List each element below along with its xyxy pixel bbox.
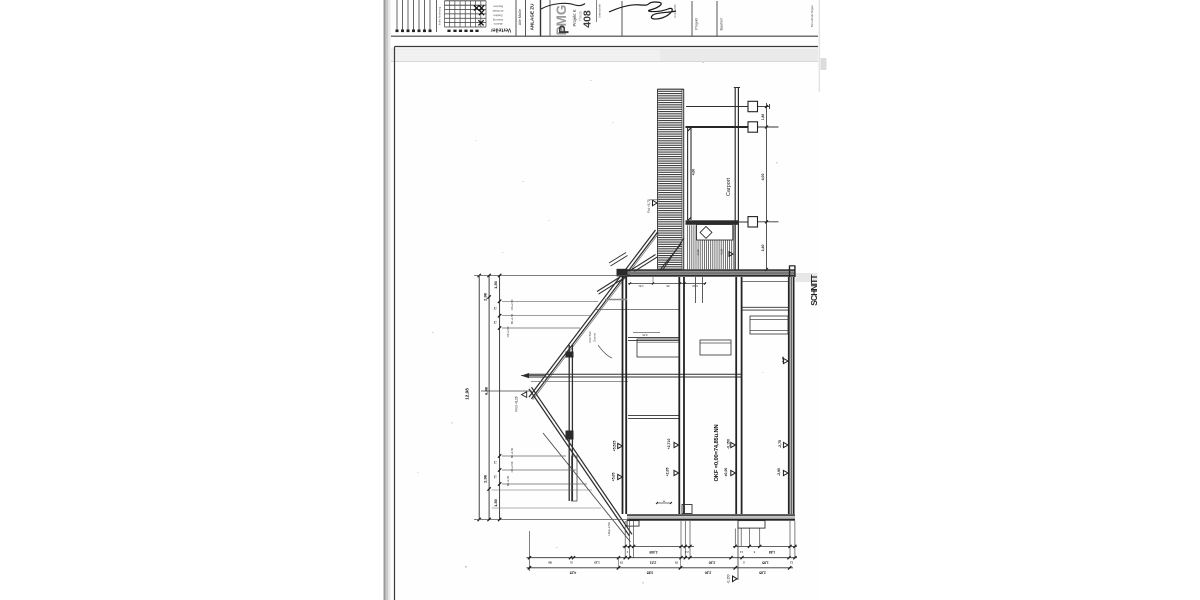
svg-text:Verteiler: Verteiler [491,27,511,33]
svg-text:+0,10: +0,10 [696,249,700,257]
svg-text:ANLAGE ZU: ANLAGE ZU [530,3,535,30]
svg-text:Carport: Carport [726,178,732,196]
svg-text:1,88: 1,88 [769,550,775,554]
svg-text:+2,710: +2,710 [667,439,671,450]
svg-text:Dachst.: Dachst. [593,332,597,342]
svg-text:1,50: 1,50 [493,498,498,507]
svg-text:75: 75 [620,560,624,564]
svg-text:Bauherr: Bauherr [720,17,724,31]
svg-text:1,25: 1,25 [594,560,600,564]
svg-text:BF+1,50: BF+1,50 [510,447,514,458]
svg-text:SCHNITT: SCHNITT [810,275,819,306]
svg-text:+5,525: +5,525 [613,441,617,452]
svg-text:OK+2,50: OK+2,50 [510,461,514,472]
svg-text:75: 75 [493,321,497,325]
svg-text:75: 75 [493,475,497,479]
svg-text:2,40: 2,40 [761,245,765,252]
svg-text:2,30: 2,30 [705,571,712,575]
svg-text:Projekt K: Projekt K [572,9,577,26]
svg-text:2,01: 2,01 [650,560,657,564]
svg-text:-2,60: -2,60 [777,468,781,476]
svg-text:Alle Maße: Alle Maße [518,9,522,25]
svg-text:0,10: 0,10 [692,284,698,288]
svg-text:Unterschrift: Unterschrift [598,4,602,18]
svg-text:Bevollmächtigter: Bevollmächtigter [810,5,814,27]
svg-text:2,85: 2,85 [759,571,766,575]
svg-text:OK+2,50: OK+2,50 [506,326,510,337]
svg-text:85: 85 [548,560,552,564]
svg-text:First +8,26: First +8,26 [515,396,519,411]
svg-text:+5,05: +5,05 [612,473,616,482]
svg-text:Unterschrift: Unterschrift [673,4,677,18]
svg-text:2,98: 2,98 [482,474,487,483]
svg-text:2,98: 2,98 [482,292,487,301]
svg-text:408: 408 [582,10,594,28]
svg-text:6,48: 6,48 [483,386,488,395]
svg-text:-0,150: -0,150 [727,439,731,449]
svg-text:12,98: 12,98 [465,388,470,400]
svg-text:+2,05: +2,05 [666,468,670,477]
svg-text:12: 12 [740,550,744,554]
svg-text:85: 85 [666,284,670,288]
svg-text:Statiker: Statiker [493,13,503,17]
svg-text:Elektro: Elektro [493,22,502,26]
svg-text:1,88: 1,88 [761,114,765,120]
svg-text:Fst +3,70: Fst +3,70 [647,199,651,213]
svg-text:1,85: 1,85 [762,560,769,564]
svg-text:-0,150: -0,150 [727,574,731,583]
svg-text:Architekt: Architekt [492,9,503,13]
svg-text:1,50: 1,50 [493,280,498,289]
svg-text:BF+1,50: BF+1,50 [506,475,510,486]
svg-text:2,385: 2,385 [649,550,657,554]
svg-text:Bauherr: Bauherr [493,5,503,9]
svg-text:8,85: 8,85 [642,333,648,337]
svg-text:OKF =0,00=74,85ü.NN: OKF =0,00=74,85ü.NN [714,424,720,481]
svg-text:75: 75 [675,560,679,564]
svg-text:1,51: 1,51 [638,284,644,288]
svg-text:Heizung: Heizung [492,18,503,22]
svg-text:-0,10: -0,10 [720,248,724,255]
svg-text:2 2: 2 2 [685,550,689,554]
svg-text:4,25: 4,25 [570,571,577,575]
svg-text:4,00: 4,00 [761,174,765,181]
svg-text:HG(+3,59: HG(+3,59 [607,522,611,535]
svg-text:OK+2,50: OK+2,50 [510,299,514,310]
svg-text:Projekt: Projekt [695,18,699,29]
svg-text:BF+1,50: BF+1,50 [510,313,514,324]
svg-text:4,00: 4,00 [692,169,696,176]
svg-text:±0,00: ±0,00 [724,468,728,477]
svg-text:Index Änderung: Index Änderung [438,6,442,25]
svg-text:P: P [557,25,572,34]
svg-text:-2,75: -2,75 [778,440,782,448]
svg-text:KSZ B36: KSZ B36 [588,331,592,343]
svg-text:75: 75 [493,461,497,465]
svg-text:75: 75 [493,307,497,311]
svg-text:2,30: 2,30 [709,560,716,564]
svg-text:3,85: 3,85 [647,571,654,575]
